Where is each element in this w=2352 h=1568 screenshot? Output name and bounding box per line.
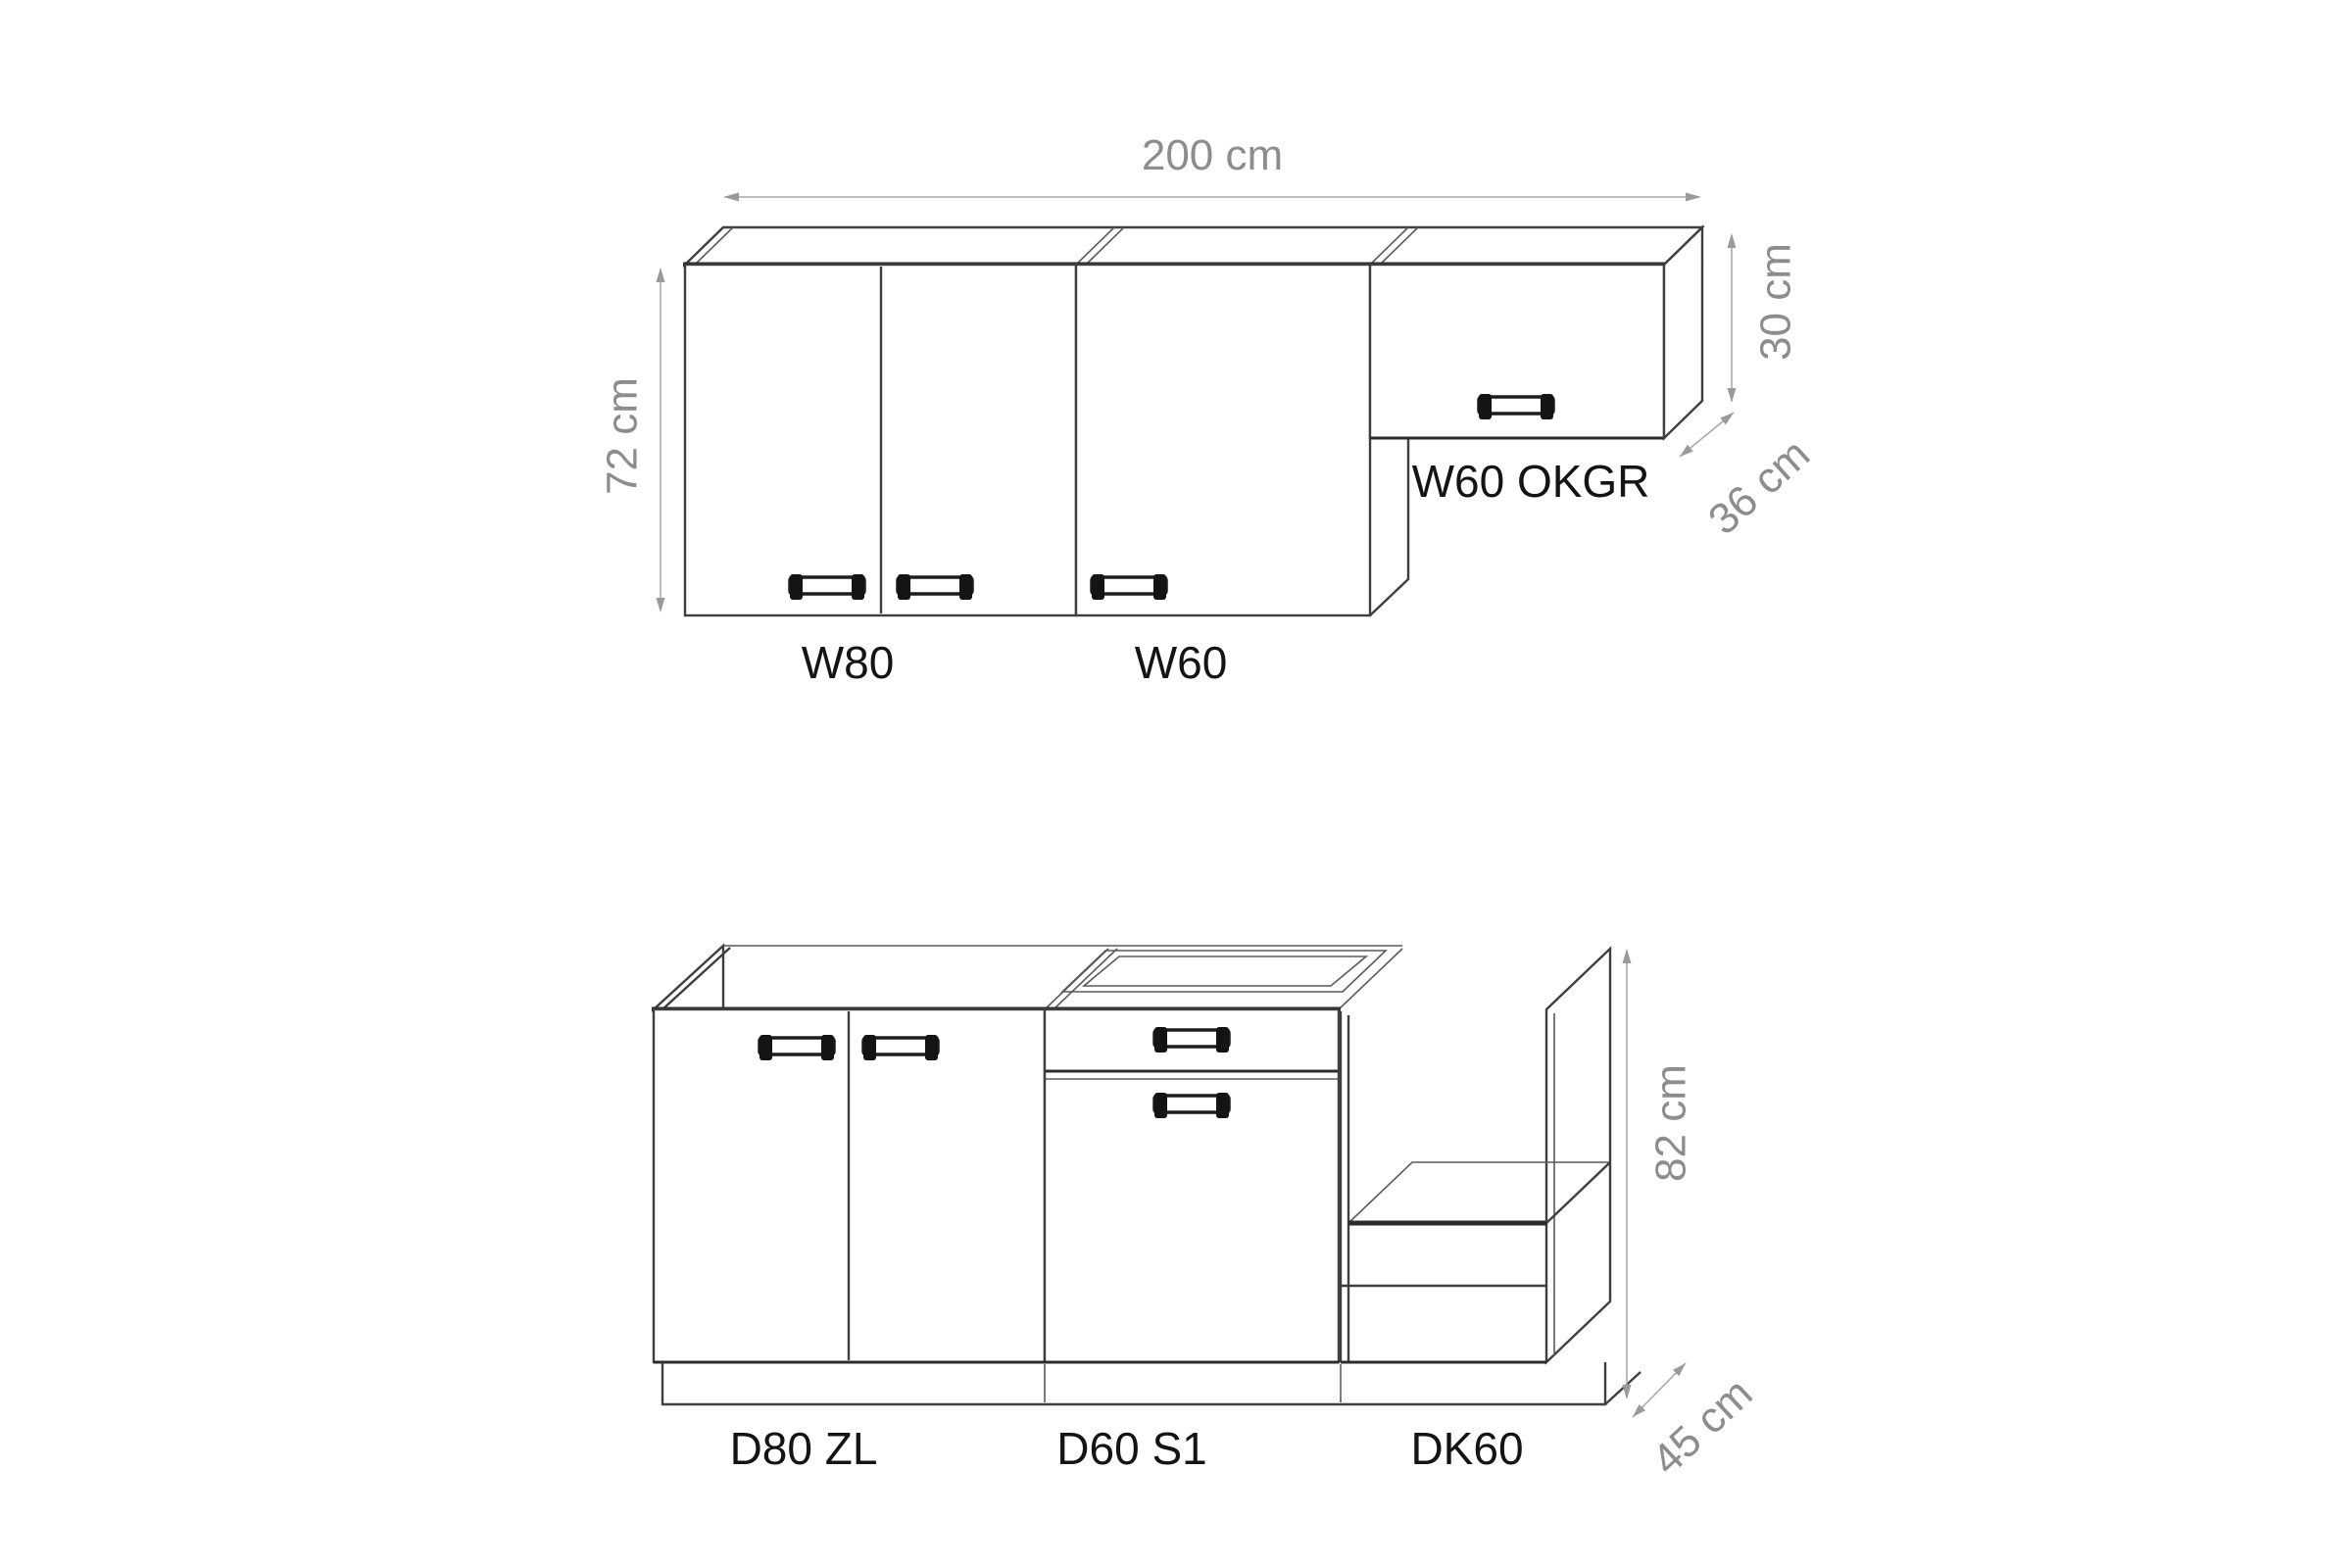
dimension-okgr-height-label: 30 cm [1752,243,1800,361]
base-label-dk60: DK60 [1410,1423,1523,1474]
base-cabinet-d80-zl [654,1009,1045,1362]
d60-front-face [1045,1009,1339,1362]
w60-front-face [1076,265,1370,615]
wall-junction-w80-w60-edge [1076,227,1124,265]
dimension-okgr-height: 30 cm [1728,233,1800,403]
dimension-wall-depth: 36 cm [1680,413,1819,544]
base-junction-d80-d60-edge [1045,949,1117,1009]
wall-label-w80: W80 [802,637,895,688]
arrowhead-right [1686,193,1701,202]
base-left-side-panel-top [654,946,730,1009]
wall-cabinet-w80 [685,265,1076,615]
wall-label-w60-okgr: W60 OKGR [1412,456,1650,507]
dimension-base-height: 82 cm [1623,949,1695,1399]
base-junction-d60-right-edge [1339,949,1402,1009]
base-plinth [662,1362,1641,1404]
plinth-outline [662,1362,1605,1404]
wall-top-face [685,227,1702,265]
dimension-base-depth: 45 cm [1633,1363,1762,1485]
wall-top-left-panel-edge [695,227,733,265]
dimension-wall-height: 72 cm [599,268,665,612]
arrowhead-left [723,193,739,202]
wall-label-w60: W60 [1135,637,1228,688]
base-cabinet-d60-s1 [1045,1009,1339,1362]
okgr-side-face [1664,227,1702,438]
kitchen-cabinet-diagram: W80 W60 W60 OKGR 200 cm 72 cm 30 cm [0,0,2352,1568]
base-label-d80-zl: D80 ZL [730,1423,878,1474]
plinth-right-corner-edge [1605,1372,1641,1404]
d60-drawer-box-rim-inner [1084,956,1366,986]
kitchen-cabinet-diagram-page: W80 W60 W60 OKGR 200 cm 72 cm 30 cm [0,0,2352,1568]
dk60-left-side-panel [1341,1011,1348,1362]
base-cabinet-dk60 [1341,949,1610,1362]
base-label-d60-s1: D60 S1 [1056,1423,1206,1474]
dimension-base-height-label: 82 cm [1647,1064,1695,1182]
dimension-wall-height-label: 72 cm [599,377,647,495]
base-cabinet-row: D80 ZL D60 S1 DK60 82 cm 45 cm [652,946,1762,1485]
dimension-base-depth-label: 45 cm [1643,1369,1762,1485]
wall-junction-w60-okgr-edge [1370,227,1418,265]
plinth-dividers [1045,1364,1341,1402]
dk60-right-side-panel [1546,949,1610,1362]
wall-cabinet-w60 [1076,265,1408,615]
dimension-wall-depth-label: 36 cm [1699,430,1819,545]
wall-cabinet-w60-okgr [1370,227,1702,438]
wall-cabinet-row: W80 W60 W60 OKGR 200 cm 72 cm 30 cm [599,131,1819,688]
dimension-total-width: 200 cm [723,131,1701,202]
dimension-total-width-label: 200 cm [1142,131,1283,179]
